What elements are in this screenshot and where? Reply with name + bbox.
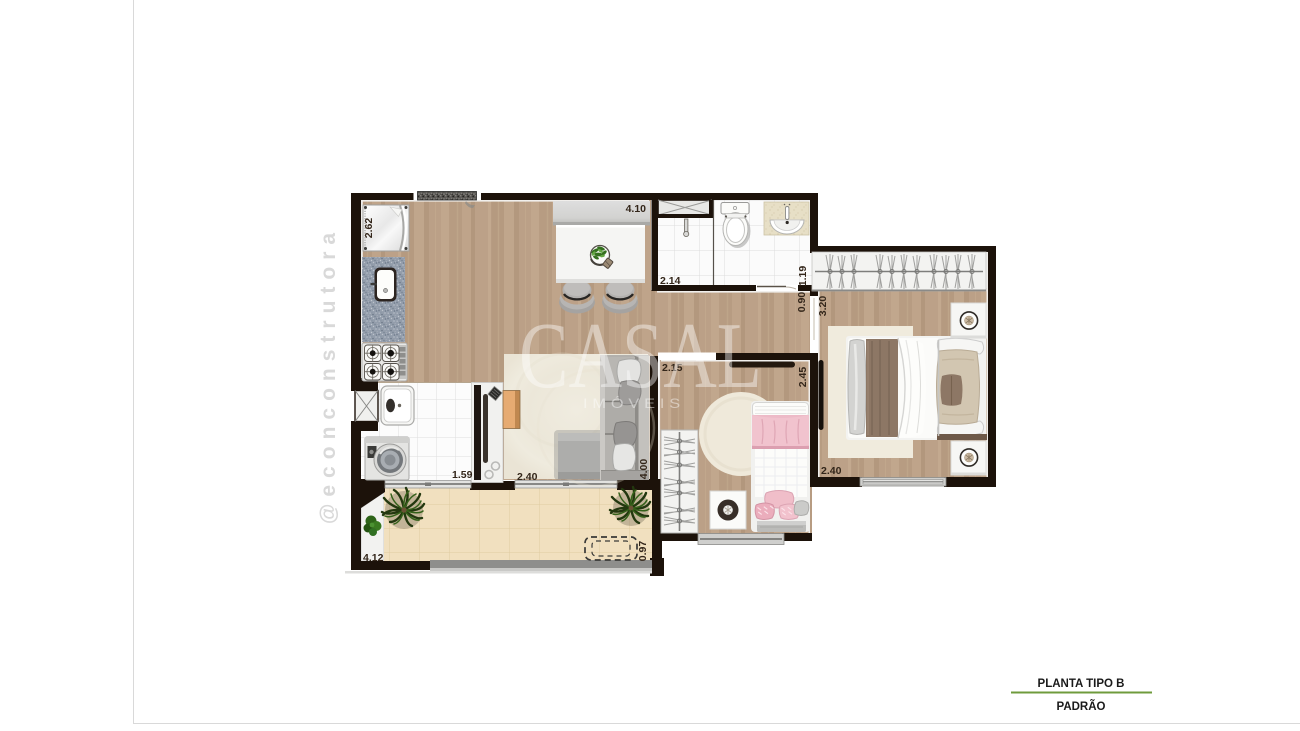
- svg-text:PLANTA TIPO B: PLANTA TIPO B: [1038, 678, 1125, 690]
- svg-text:1.59: 1.59: [452, 469, 473, 481]
- svg-text:0.97: 0.97: [637, 541, 649, 562]
- svg-text:@econconstrutora: @econconstrutora: [317, 226, 340, 524]
- svg-text:4.12: 4.12: [363, 552, 384, 564]
- svg-text:2.62: 2.62: [363, 218, 375, 239]
- svg-text:3.20: 3.20: [817, 296, 829, 317]
- svg-text:2.40: 2.40: [821, 465, 842, 477]
- svg-text:0.90: 0.90: [796, 292, 808, 313]
- svg-text:PADRÃO: PADRÃO: [1057, 700, 1106, 713]
- svg-text:1.19: 1.19: [797, 266, 809, 287]
- svg-text:2.45: 2.45: [797, 367, 809, 388]
- svg-text:CASAL: CASAL: [519, 304, 762, 408]
- svg-text:4.10: 4.10: [626, 203, 647, 215]
- svg-text:2.14: 2.14: [660, 275, 681, 287]
- svg-text:IMÓVEIS: IMÓVEIS: [583, 396, 685, 411]
- svg-text:2.40: 2.40: [517, 471, 538, 483]
- svg-text:4.00: 4.00: [638, 459, 650, 480]
